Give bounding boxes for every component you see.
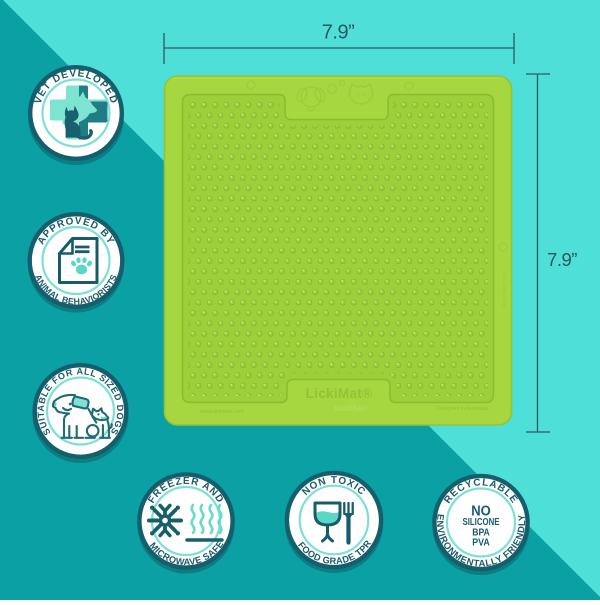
svg-text:LickiMat®: LickiMat® <box>306 386 373 401</box>
svg-text:soother: soother <box>333 403 367 413</box>
svg-text:PVA: PVA <box>472 538 490 549</box>
svg-text:7.9”: 7.9” <box>547 249 577 270</box>
svg-text:Designed in Australia: Designed in Australia <box>436 406 489 412</box>
svg-text:7.9”: 7.9” <box>322 22 354 44</box>
svg-text:www.lickimat.com: www.lickimat.com <box>199 409 244 415</box>
svg-text:For Licks Only: For Licks Only <box>501 272 507 307</box>
svg-text:SILICONE: SILICONE <box>463 517 500 528</box>
